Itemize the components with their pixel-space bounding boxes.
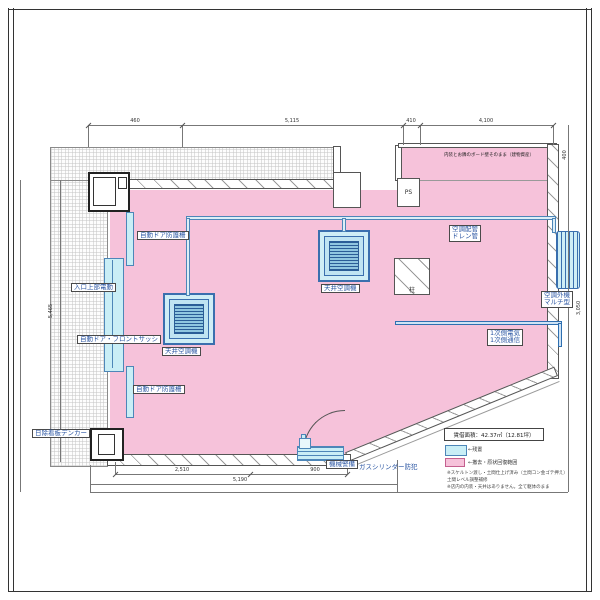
legend-swatch-remain <box>445 445 467 456</box>
wall-top-band <box>128 179 338 189</box>
dim-label-right-3050: 3,050 <box>576 301 582 315</box>
legend-note-3: ※店内の内装・天井はありません。全て躯体のまま <box>447 484 568 491</box>
label-ceiling-ac-1: 天井空調機 <box>162 347 201 356</box>
entrance-window <box>118 177 127 189</box>
canopy-inner-box <box>98 434 115 455</box>
label-awning-sign: 日除看板デンカー <box>32 429 90 438</box>
pillar: 柱 <box>394 258 430 295</box>
ps-shaft-box: PS <box>397 178 420 207</box>
ac-pipe-horizontal <box>186 216 556 220</box>
label-primary-power: 1次側電気 1次側通信 <box>487 329 523 346</box>
top-center-box <box>333 172 361 208</box>
dim-line-left-inner <box>60 180 61 462</box>
label-ac-piping-line2: ドレン管 <box>452 233 478 240</box>
dim-ext-b1 <box>90 465 91 492</box>
label-outdoor-unit: 空調外機 マルチ型 <box>541 291 573 308</box>
label-door-guard-upper: 自動ドア防護柵 <box>137 231 189 240</box>
legend-note-2: 土間レベル調整補修 <box>447 477 568 484</box>
ac-pipe-drop-left <box>186 218 190 296</box>
legend-label-restore: ←撤去・原状回復範囲 <box>468 459 517 466</box>
dim-label-b3: 5,190 <box>233 477 247 483</box>
dim-label-left: 5,465 <box>48 304 54 318</box>
dim-line-bottom-1 <box>115 474 347 475</box>
ps-shaft-label: PS <box>405 189 412 196</box>
label-door-guard-lower: 自動ドア防護柵 <box>133 385 185 394</box>
label-primary-line2: 1次側通信 <box>490 337 520 344</box>
note-divider-line <box>400 180 548 181</box>
ceiling-ac-2-grille <box>329 241 359 271</box>
dim-ext-t4 <box>420 125 421 145</box>
dim-line-bottom-3 <box>90 492 568 493</box>
pillar-label: 柱 <box>409 285 415 294</box>
sheet-border-right-inner <box>586 8 587 592</box>
ceiling-ac-unit-1 <box>163 293 215 345</box>
legend-area-box: 賃借面積：42.37㎡（12.81坪） <box>444 428 544 441</box>
label-ceiling-ac-2: 天井空調機 <box>321 284 360 293</box>
wall-step-vertical <box>395 145 402 181</box>
dim-line-top <box>88 125 553 126</box>
ac-pipe-drop-center <box>342 218 346 232</box>
label-front-sash: 自動ドア・フロントサッシ <box>77 335 161 344</box>
sheet-border-left-outer <box>8 8 9 592</box>
label-machine-security: 機械警備 <box>326 460 358 469</box>
dim-ext-b3 <box>115 462 116 474</box>
dim-label-top-4: 4,100 <box>479 118 493 124</box>
primary-conduit-horizontal <box>395 321 562 325</box>
ceiling-ac-unit-2 <box>318 230 370 282</box>
primary-conduit-elbow <box>558 323 562 347</box>
sheet-border-bottom <box>8 591 592 592</box>
front-sash-strip <box>104 258 124 372</box>
entrance-inner-box <box>93 177 116 206</box>
top-right-note: 内装とお隣のボード壁そのまま（建物資産） <box>426 152 552 158</box>
dim-label-b2: 900 <box>310 467 320 473</box>
legend-notes: ※スケルトン渡し・土間仕上げ済み（土間コン金ゴテ押え） 土間レベル調整補修 ※店… <box>447 470 568 492</box>
gas-cylinder-small-box <box>299 438 311 449</box>
label-outdoor-line2: マルチ型 <box>544 299 570 306</box>
dim-label-b1: 2,510 <box>175 467 189 473</box>
dim-line-bottom-2 <box>90 484 397 485</box>
label-ac-piping: 空調配管 ドレン管 <box>449 225 481 242</box>
front-sash-centerline <box>112 260 113 368</box>
label-entrance-motor: 入口上部電動 <box>71 283 116 292</box>
legend-label-remain: ←残置 <box>468 446 482 453</box>
legend-area-text: 賃借面積：42.37㎡（12.81坪） <box>454 431 535 439</box>
legend-swatch-restore <box>445 458 465 467</box>
ac-pipe-drop-right <box>552 218 556 233</box>
dim-line-right <box>568 125 569 492</box>
dim-label-top-1: 460 <box>130 118 140 124</box>
sheet-border-right-outer <box>591 8 592 592</box>
ceiling-ac-1-grille <box>174 304 204 334</box>
wall-top-right <box>398 143 557 148</box>
dim-ext-t1 <box>88 125 89 147</box>
dim-label-top-2: 5,115 <box>285 118 299 124</box>
dim-ext-t5 <box>553 125 554 145</box>
sheet-border-left-inner <box>13 8 14 592</box>
dim-label-right-400: 400 <box>562 150 568 160</box>
label-gas-cylinder: ガスシリンダー防犯 <box>359 461 418 471</box>
legend-note-1: ※スケルトン渡し・土間仕上げ済み（土間コン金ゴテ押え） <box>447 470 568 477</box>
dim-ext-t2 <box>182 125 183 147</box>
sheet-border-top <box>8 9 592 10</box>
dim-line-left-outer <box>20 180 21 492</box>
hatched-area-left <box>50 180 108 467</box>
door-guard-strip-upper <box>126 212 134 266</box>
dim-label-top-3: 410 <box>406 118 416 124</box>
dim-ext-t3 <box>403 125 404 145</box>
drawing-sheet: PS 柱 内装とお隣のボード壁そのまま（建物資産） <box>0 0 600 600</box>
